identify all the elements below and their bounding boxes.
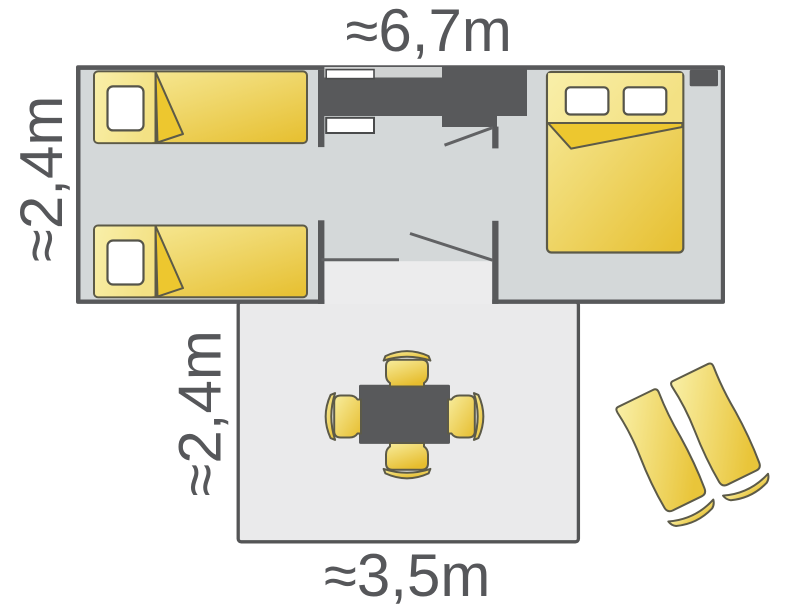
svg-text:≈2,4m: ≈2,4m [167,330,234,496]
svg-text:≈6,7m: ≈6,7m [346,0,512,64]
svg-text:≈3,5m: ≈3,5m [324,542,490,609]
svg-text:≈2,4m: ≈2,4m [8,96,75,262]
